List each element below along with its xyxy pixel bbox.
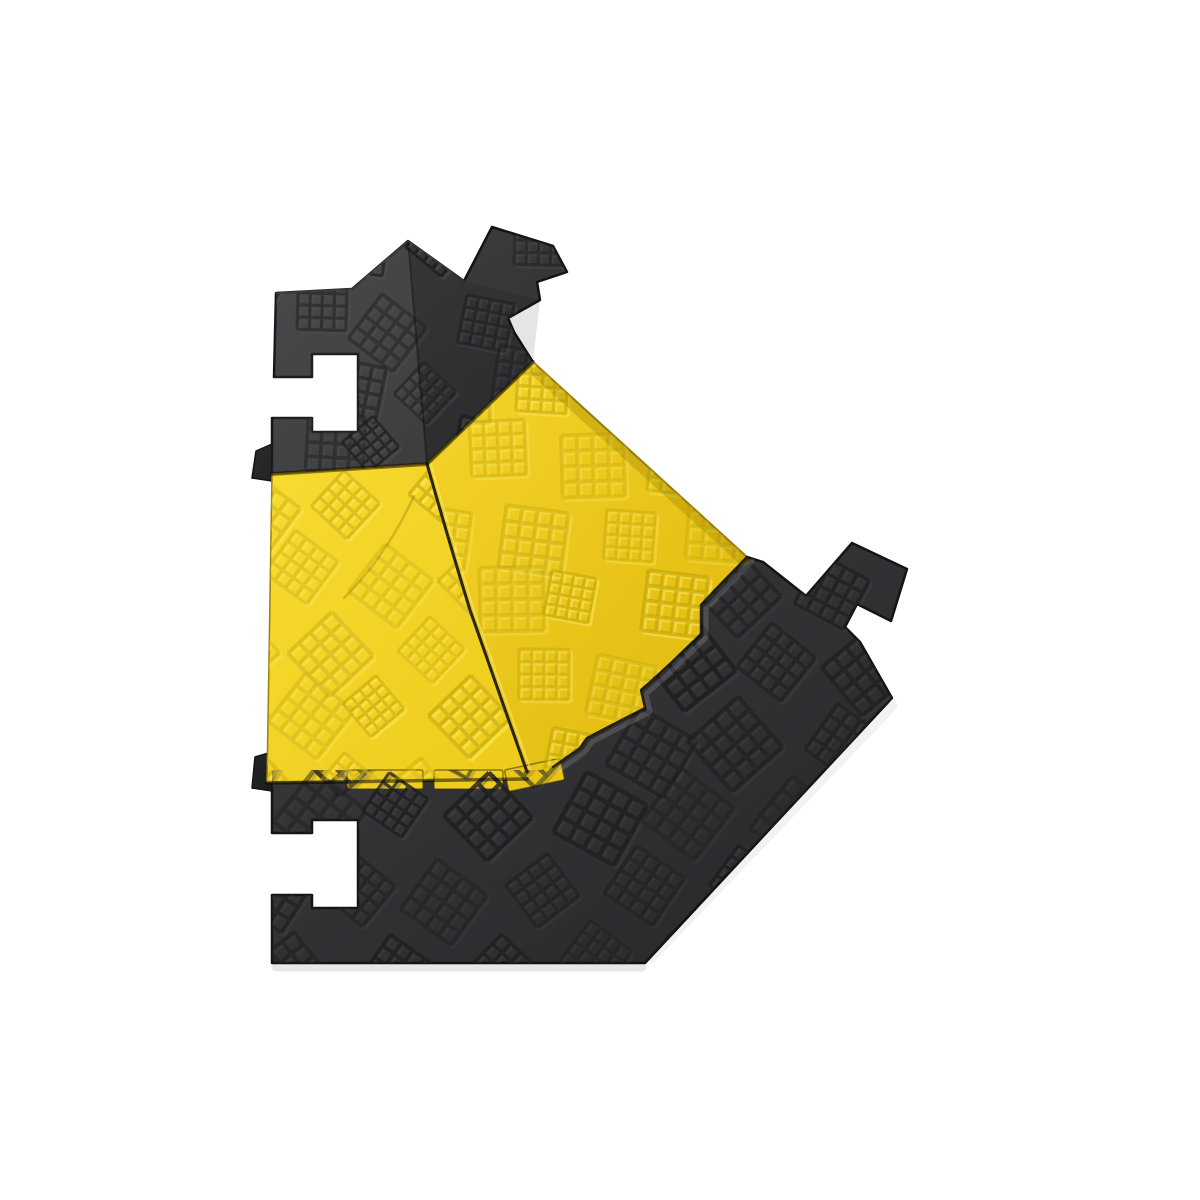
waffle-stamp: [799, 847, 865, 913]
waffle-stamp: [201, 612, 279, 690]
waffle-stamp-highlight: [831, 776, 921, 866]
upper-ramp-hinge-lip: [252, 444, 272, 481]
waffle-stamp: [617, 346, 670, 399]
waffle-stamp-highlight: [709, 351, 765, 407]
waffle-stamp-highlight: [748, 432, 805, 489]
waffle-stamp: [760, 923, 843, 1006]
product-photo-cable-protector-corner: [0, 0, 1200, 1200]
product-artwork: [0, 0, 1200, 1200]
waffle-stamp: [829, 773, 919, 863]
waffle-stamp-highlight: [801, 849, 867, 915]
waffle-stamp-highlight: [763, 926, 846, 1009]
cable-protector-corner-render: [0, 0, 1200, 1200]
waffle-stamp: [706, 349, 762, 405]
waffle-stamp-highlight: [843, 941, 917, 1015]
waffle-stamp: [745, 429, 802, 486]
waffle-stamp-highlight: [620, 348, 673, 401]
waffle-stamp: [841, 938, 915, 1012]
